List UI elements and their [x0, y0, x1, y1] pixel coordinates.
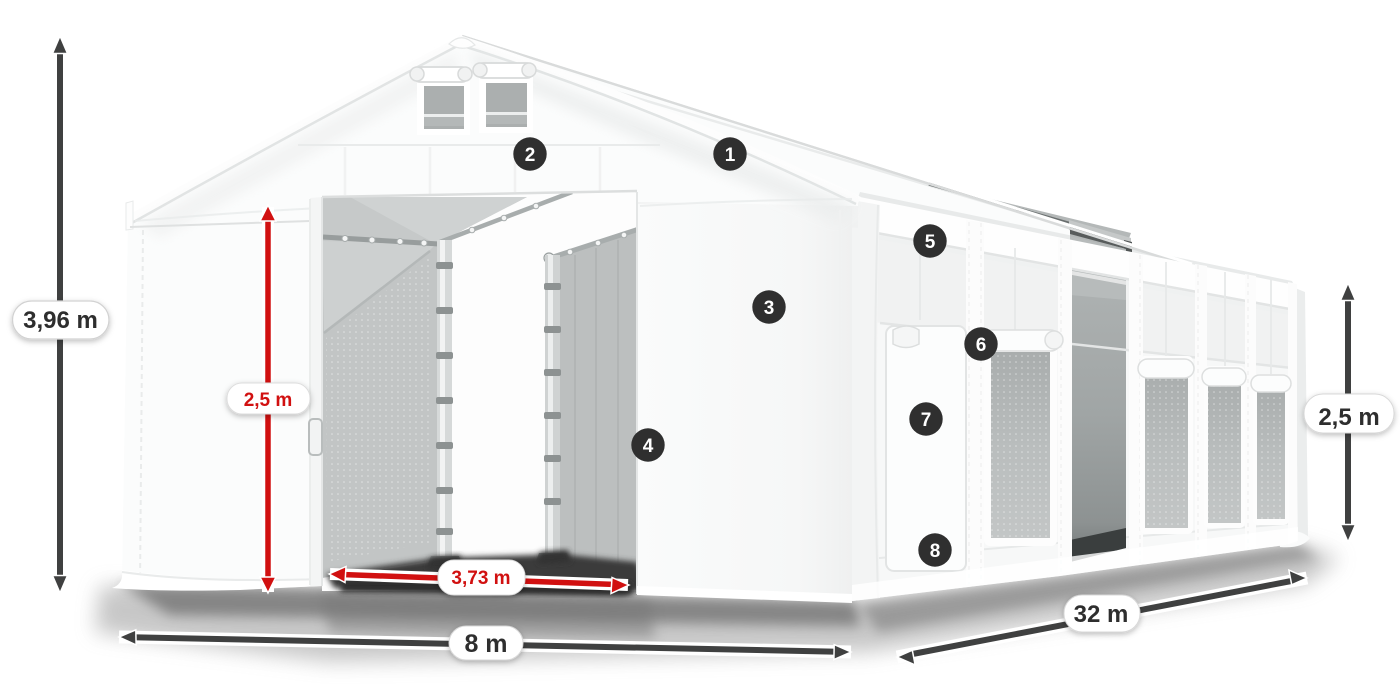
svg-text:3,73 m: 3,73 m	[451, 568, 510, 589]
svg-text:2,5 m: 2,5 m	[1318, 404, 1379, 431]
svg-text:8: 8	[930, 541, 941, 562]
svg-text:2: 2	[525, 145, 536, 166]
svg-text:7: 7	[921, 410, 932, 431]
svg-text:3: 3	[764, 298, 775, 319]
svg-text:32 m: 32 m	[1074, 601, 1129, 628]
svg-text:3,96 m: 3,96 m	[23, 307, 98, 334]
svg-text:8 m: 8 m	[464, 630, 507, 658]
svg-text:2,5 m: 2,5 m	[244, 390, 293, 411]
svg-text:5: 5	[925, 232, 936, 253]
svg-text:1: 1	[725, 145, 736, 166]
svg-text:6: 6	[976, 335, 987, 356]
svg-text:4: 4	[643, 436, 654, 457]
